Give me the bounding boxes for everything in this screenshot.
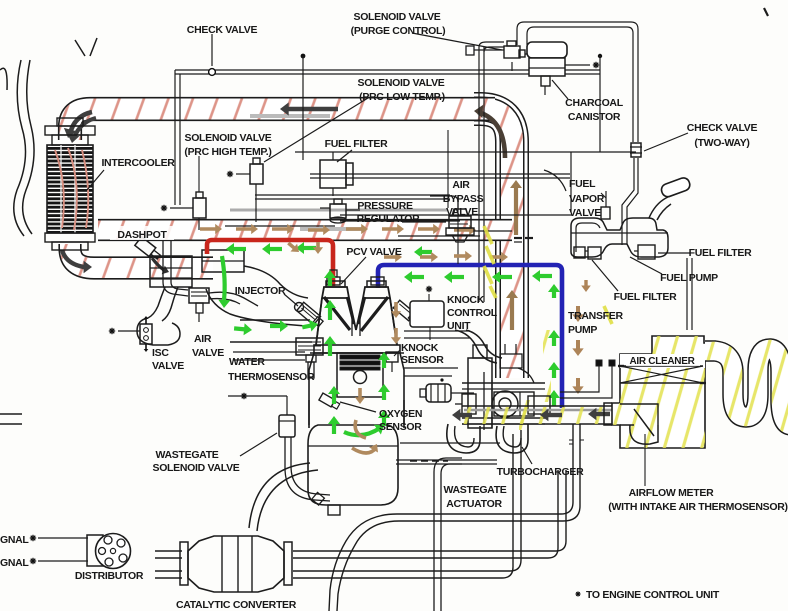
svg-text:CHECK VALVE: CHECK VALVE (187, 24, 258, 36)
svg-text:SOLENOID VALVE: SOLENOID VALVE (184, 132, 271, 144)
svg-text:(WITH INTAKE AIR THERMOSENSOR): (WITH INTAKE AIR THERMOSENSOR) (608, 501, 787, 513)
svg-text:FUEL: FUEL (569, 178, 596, 190)
svg-text:AIR: AIR (452, 179, 470, 191)
svg-text:TRANSFER: TRANSFER (568, 310, 623, 322)
svg-text:AIRFLOW METER: AIRFLOW METER (629, 487, 714, 499)
svg-text:(PRC HIGH TEMP.): (PRC HIGH TEMP.) (184, 146, 271, 158)
svg-text:FUEL FILTER: FUEL FILTER (325, 138, 389, 150)
svg-text:AIR CLEANER: AIR CLEANER (629, 356, 695, 367)
svg-text:OXYGEN: OXYGEN (379, 408, 422, 420)
svg-text:PRESSURE: PRESSURE (357, 200, 413, 212)
svg-text:UNIT: UNIT (447, 320, 471, 332)
svg-text:KNOCK: KNOCK (447, 294, 485, 306)
svg-text:VALVE: VALVE (569, 207, 601, 219)
svg-text:FUEL PUMP: FUEL PUMP (660, 272, 718, 284)
svg-text:VAPOR: VAPOR (569, 193, 605, 205)
svg-text:(TWO-WAY): (TWO-WAY) (694, 137, 749, 149)
svg-text:GNAL: GNAL (0, 557, 29, 569)
svg-text:VALVE: VALVE (152, 360, 184, 372)
svg-text:CHARCOAL: CHARCOAL (565, 97, 624, 109)
svg-text:PCV VALVE: PCV VALVE (346, 246, 402, 258)
svg-text:(PRC LOW TEMP.): (PRC LOW TEMP.) (359, 91, 445, 103)
svg-text:WASTEGATE: WASTEGATE (155, 449, 218, 461)
svg-text:TO ENGINE CONTROL UNIT: TO ENGINE CONTROL UNIT (586, 589, 720, 601)
svg-text:VALVE: VALVE (192, 347, 224, 359)
svg-text:FUEL FILTER: FUEL FILTER (614, 291, 678, 303)
svg-text:SENSOR: SENSOR (401, 354, 444, 366)
svg-text:GNAL: GNAL (0, 534, 29, 546)
svg-text:CATALYTIC CONVERTER: CATALYTIC CONVERTER (176, 599, 297, 611)
svg-text:WATER: WATER (229, 356, 265, 368)
svg-text:ACTUATOR: ACTUATOR (446, 498, 502, 510)
svg-text:SOLENOID VALVE: SOLENOID VALVE (357, 77, 444, 89)
svg-text:TURBOCHARGER: TURBOCHARGER (497, 466, 585, 478)
svg-text:PUMP: PUMP (568, 324, 597, 336)
svg-text:REGULATOR: REGULATOR (357, 213, 421, 225)
svg-text:(PURGE CONTROL): (PURGE CONTROL) (351, 25, 446, 37)
svg-text:SOLENOID VALVE: SOLENOID VALVE (353, 11, 440, 23)
svg-text:CONTROL: CONTROL (447, 307, 498, 319)
svg-text:WASTEGATE: WASTEGATE (443, 484, 506, 496)
svg-text:DASHPOT: DASHPOT (117, 229, 167, 241)
svg-text:KNOCK: KNOCK (401, 342, 439, 354)
svg-text:DISTRIBUTOR: DISTRIBUTOR (75, 570, 144, 582)
svg-text:FUEL FILTER: FUEL FILTER (689, 247, 753, 259)
svg-text:VALVE: VALVE (446, 206, 478, 218)
svg-text:INJECTOR: INJECTOR (235, 285, 286, 297)
svg-text:INTERCOOLER: INTERCOOLER (101, 157, 175, 169)
svg-text:BYPASS: BYPASS (443, 193, 484, 205)
svg-text:SENSOR: SENSOR (379, 421, 422, 433)
svg-text:THERMOSENSOR: THERMOSENSOR (228, 371, 315, 383)
svg-text:CHECK VALVE: CHECK VALVE (687, 122, 758, 134)
svg-text:CANISTOR: CANISTOR (568, 111, 621, 123)
svg-text:SOLENOID VALVE: SOLENOID VALVE (152, 462, 239, 474)
svg-text:AIR: AIR (194, 333, 212, 345)
svg-text:ISC: ISC (152, 347, 169, 359)
